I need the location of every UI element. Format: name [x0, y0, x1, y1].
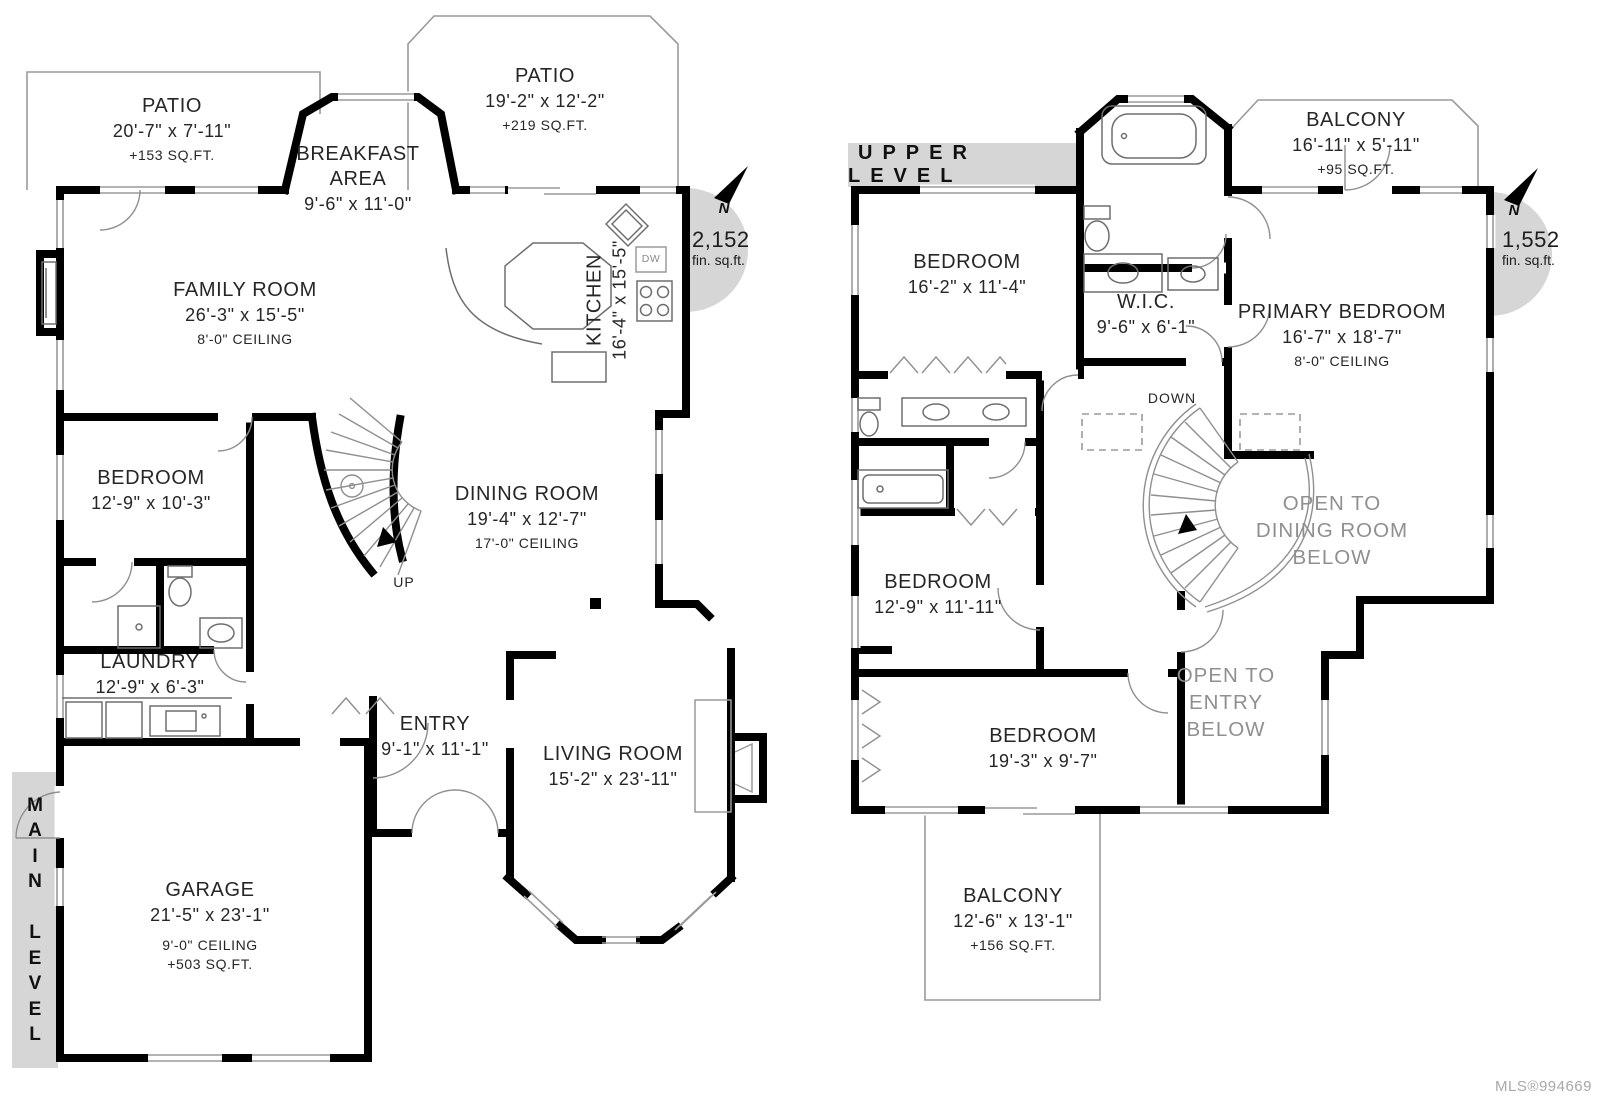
- open-to-entry-label: OPEN TO ENTRY BELOW: [1177, 662, 1276, 743]
- room-label-living: LIVING ROOM 15'-2" x 23'-11": [543, 742, 683, 791]
- mls-number: MLS®994669: [1495, 1078, 1592, 1095]
- upper-level-banner: UPPER LEVEL: [848, 143, 1082, 187]
- area-badge-upper: 1,552 fin. sq.ft.: [1502, 228, 1560, 269]
- room-label-laundry: LAUNDRY 12'-9" x 6'-3": [95, 650, 204, 699]
- room-label-wic: W.I.C. 9'-6" x 6'-1": [1097, 290, 1196, 339]
- area-badge-main: 2,152 fin. sq.ft.: [692, 228, 750, 269]
- room-label-bedroom2-upper: BEDROOM 12'-9" x 11'-11": [874, 570, 1002, 619]
- north-label-main: N: [719, 200, 730, 217]
- room-label-entry: ENTRY 9'-1" x 11'-1": [381, 712, 489, 761]
- north-arrow-upper: [1504, 168, 1538, 206]
- room-label-bedroom1-upper: BEDROOM 16'-2" x 11'-4": [908, 250, 1026, 299]
- stair-up-label: UP: [393, 574, 414, 590]
- room-label-family: FAMILY ROOM 26'-3" x 15'-5" 8'-0" CEILIN…: [173, 278, 317, 349]
- room-label-patio2: PATIO 19'-2" x 12'-2" +219 SQ.FT.: [485, 64, 605, 135]
- floorplan-page: { "page": { "mls": "MLS®994669" }, "main…: [0, 0, 1600, 1103]
- room-label-dining: DINING ROOM 19'-4" x 12'-7" 17'-0" CEILI…: [455, 482, 599, 553]
- stair-down-label: DOWN: [1148, 390, 1196, 406]
- open-to-dining-label: OPEN TO DINING ROOM BELOW: [1256, 490, 1408, 571]
- room-label-balcony2: BALCONY 12'-6" x 13'-1" +156 SQ.FT.: [953, 884, 1073, 955]
- room-label-garage: GARAGE 21'-5" x 23'-1" 9'-0" CEILING +50…: [150, 878, 270, 974]
- dishwasher-label: DW: [642, 253, 661, 265]
- room-label-breakfast: BREAKFAST AREA 9'-6" x 11'-0": [296, 142, 419, 216]
- room-label-kitchen: KITCHEN 16'-4" x 15'-5": [583, 240, 632, 360]
- wall-gaps: [60, 97, 1490, 1058]
- room-label-balcony1: BALCONY 16'-11" x 5'-11" +95 SQ.FT.: [1292, 108, 1420, 179]
- room-label-patio1: PATIO 20'-7" x 7'-11" +153 SQ.FT.: [113, 94, 231, 165]
- room-label-bedroom3-upper: BEDROOM 19'-3" x 9'-7": [988, 724, 1097, 773]
- windows: [57, 94, 1493, 1061]
- north-label-upper: N: [1509, 202, 1520, 219]
- room-label-bedroom-main: BEDROOM 12'-9" x 10'-3": [91, 466, 211, 515]
- stair-down-arrow: [1178, 514, 1197, 534]
- north-arrow-main: [714, 166, 748, 204]
- dashed-details: [1082, 414, 1300, 450]
- main-level-banner: M A I N L E V E L: [12, 772, 58, 1068]
- room-label-primary: PRIMARY BEDROOM 16'-7" x 18'-7" 8'-0" CE…: [1238, 300, 1446, 371]
